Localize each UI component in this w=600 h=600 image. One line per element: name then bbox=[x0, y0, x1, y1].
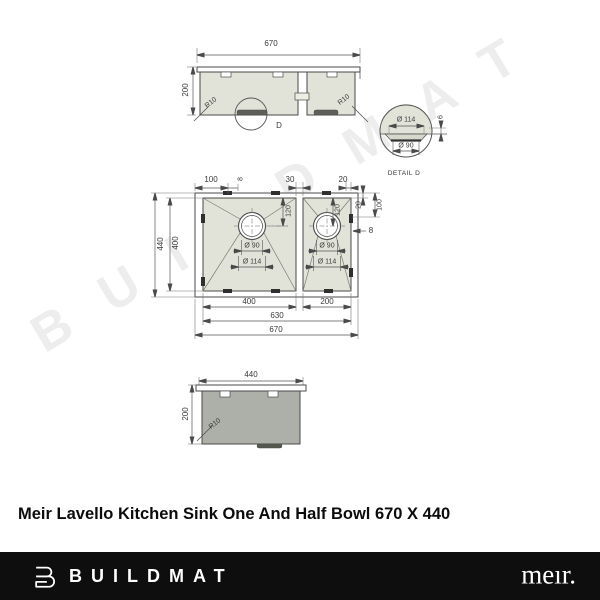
plan-left-drain-depth: 120 bbox=[286, 205, 293, 217]
detail-caption: DETAIL D bbox=[388, 171, 421, 178]
detail-depth-dim: 6 bbox=[438, 115, 445, 119]
plan-overall-width: 670 bbox=[267, 326, 284, 334]
plan-left-outer-dia: Ø 114 bbox=[242, 259, 263, 266]
front-view-drawing bbox=[187, 48, 368, 130]
drain-bump-side bbox=[257, 444, 282, 448]
buildmat-logo-icon bbox=[32, 563, 59, 590]
plan-inner-width: 630 bbox=[268, 312, 285, 320]
mounting-clip bbox=[268, 391, 278, 397]
front-height-dim: 200 bbox=[182, 83, 190, 96]
side-view-drawing bbox=[188, 377, 306, 448]
plan-top-right-dim: 20 bbox=[339, 176, 348, 184]
plan-right-bowl-width: 200 bbox=[318, 298, 335, 306]
plan-right-drain-depth: 120 bbox=[335, 204, 342, 216]
side-height-dim: 200 bbox=[182, 407, 190, 420]
mounting-clip bbox=[273, 72, 283, 77]
plan-top-clip-dim: 8 bbox=[238, 177, 245, 181]
plan-right-outer-dia: Ø 114 bbox=[317, 259, 338, 266]
left-drain-bump bbox=[237, 110, 267, 115]
plan-right-inner-dia: Ø 90 bbox=[318, 243, 335, 250]
detail-outer-dia: Ø 114 bbox=[397, 117, 416, 124]
buildmat-wordmark: BUILDMAT bbox=[69, 566, 234, 587]
plan-right-rim-dim: 20 bbox=[356, 201, 363, 209]
plan-right-drain-dim: 100 bbox=[377, 199, 384, 211]
detail-marker-label: D bbox=[276, 122, 282, 130]
right-drain-bump bbox=[314, 110, 338, 115]
side-width-dim: 440 bbox=[244, 371, 257, 379]
mounting-clip bbox=[221, 72, 231, 77]
mounting-clip bbox=[220, 391, 230, 397]
detail-inner-dia: Ø 90 bbox=[398, 143, 413, 150]
mounting-clip bbox=[327, 72, 337, 77]
footer-bar: BUILDMAT meır. bbox=[0, 552, 600, 600]
sink-spec-sheet: BUILDMAT bbox=[0, 0, 600, 600]
plan-bowl-gap-dim: 30 bbox=[286, 176, 295, 184]
plan-bowl-depth-dim: 400 bbox=[172, 236, 180, 249]
product-title: Meir Lavello Kitchen Sink One And Half B… bbox=[18, 505, 450, 524]
plan-top-offset-dim: 100 bbox=[204, 176, 217, 184]
bowl-connector bbox=[295, 93, 309, 100]
plan-overall-depth-dim: 440 bbox=[157, 237, 165, 250]
front-width-dim: 670 bbox=[264, 40, 277, 48]
plan-view-drawing bbox=[151, 182, 380, 339]
plan-right-gap-dim: 8 bbox=[369, 227, 373, 235]
plan-left-inner-dia: Ø 90 bbox=[243, 243, 260, 250]
plan-left-bowl-width: 400 bbox=[240, 298, 257, 306]
meir-logo: meır. bbox=[521, 559, 576, 590]
